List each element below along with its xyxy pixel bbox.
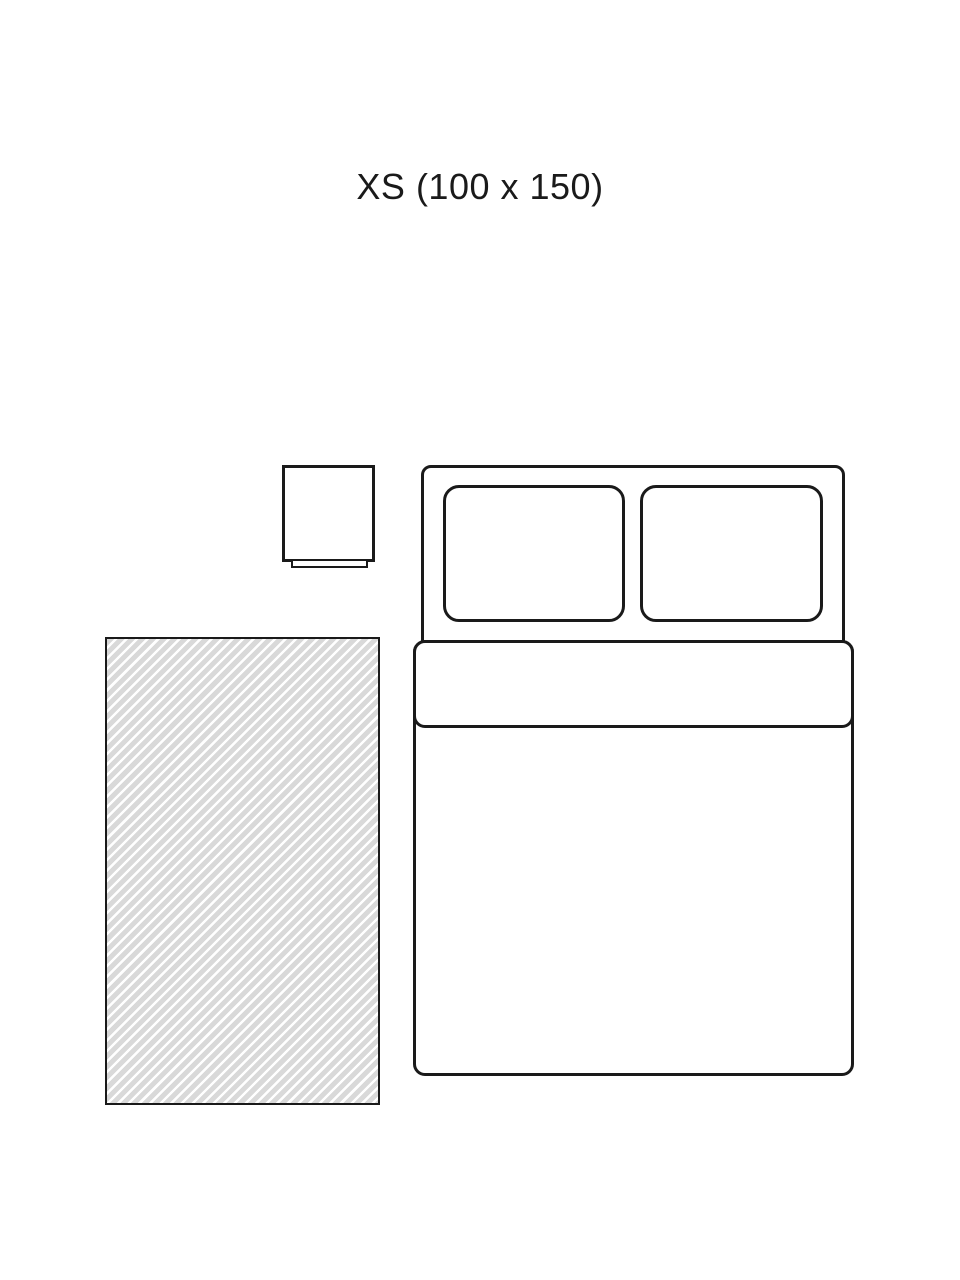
- size-guide-diagram: XS (100 x 150): [0, 0, 960, 1280]
- nightstand-icon: [282, 465, 375, 562]
- duvet-fold: [413, 640, 854, 728]
- size-title: XS (100 x 150): [0, 166, 960, 208]
- pillow-right-icon: [640, 485, 823, 622]
- rug-icon: [105, 637, 380, 1105]
- pillow-left-icon: [443, 485, 625, 622]
- nightstand-base: [291, 559, 368, 568]
